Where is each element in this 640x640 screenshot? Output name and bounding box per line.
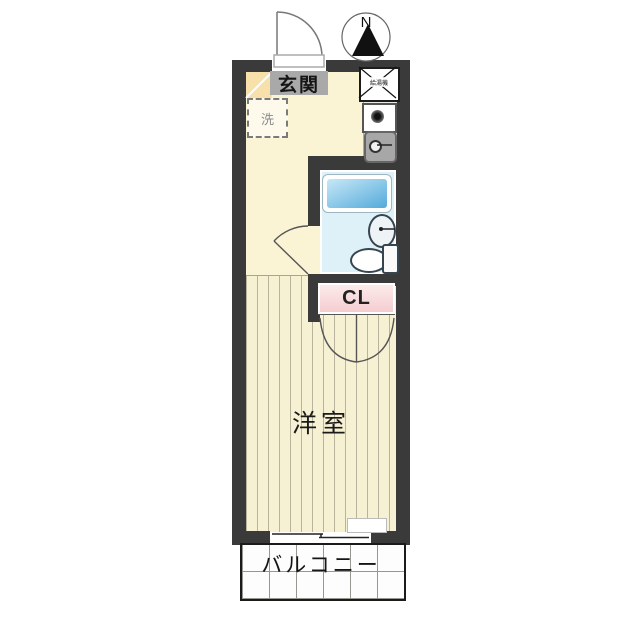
bathroom-sink-icon [368,214,396,248]
entrance-door-slab [274,55,324,67]
balcony-label: バルコニー [240,548,402,580]
compass-north-label: N [356,14,376,30]
entrance-label: 玄関 [270,71,328,95]
burner-ring-icon [371,110,384,123]
bathtub-water [327,179,387,208]
wall-left [232,60,246,543]
floor-plan: 玄関 洗 給湯機 CL 洋室 バルコニー N [0,0,640,640]
wall-right [396,60,410,543]
entrance-door-arc [277,12,322,57]
toilet-tank-icon [382,244,399,274]
western-room-label: 洋室 [261,405,381,439]
washing-machine-icon: 洗 [247,98,288,138]
window-sill [347,518,387,533]
wall-bathroom-left [308,156,320,226]
bathtub-icon [323,175,391,212]
genkan-tile [246,72,272,98]
water-heater-label: 給湯機 [366,77,392,87]
kitchen-faucet-icon [369,140,382,153]
closet-label: CL [318,283,395,314]
